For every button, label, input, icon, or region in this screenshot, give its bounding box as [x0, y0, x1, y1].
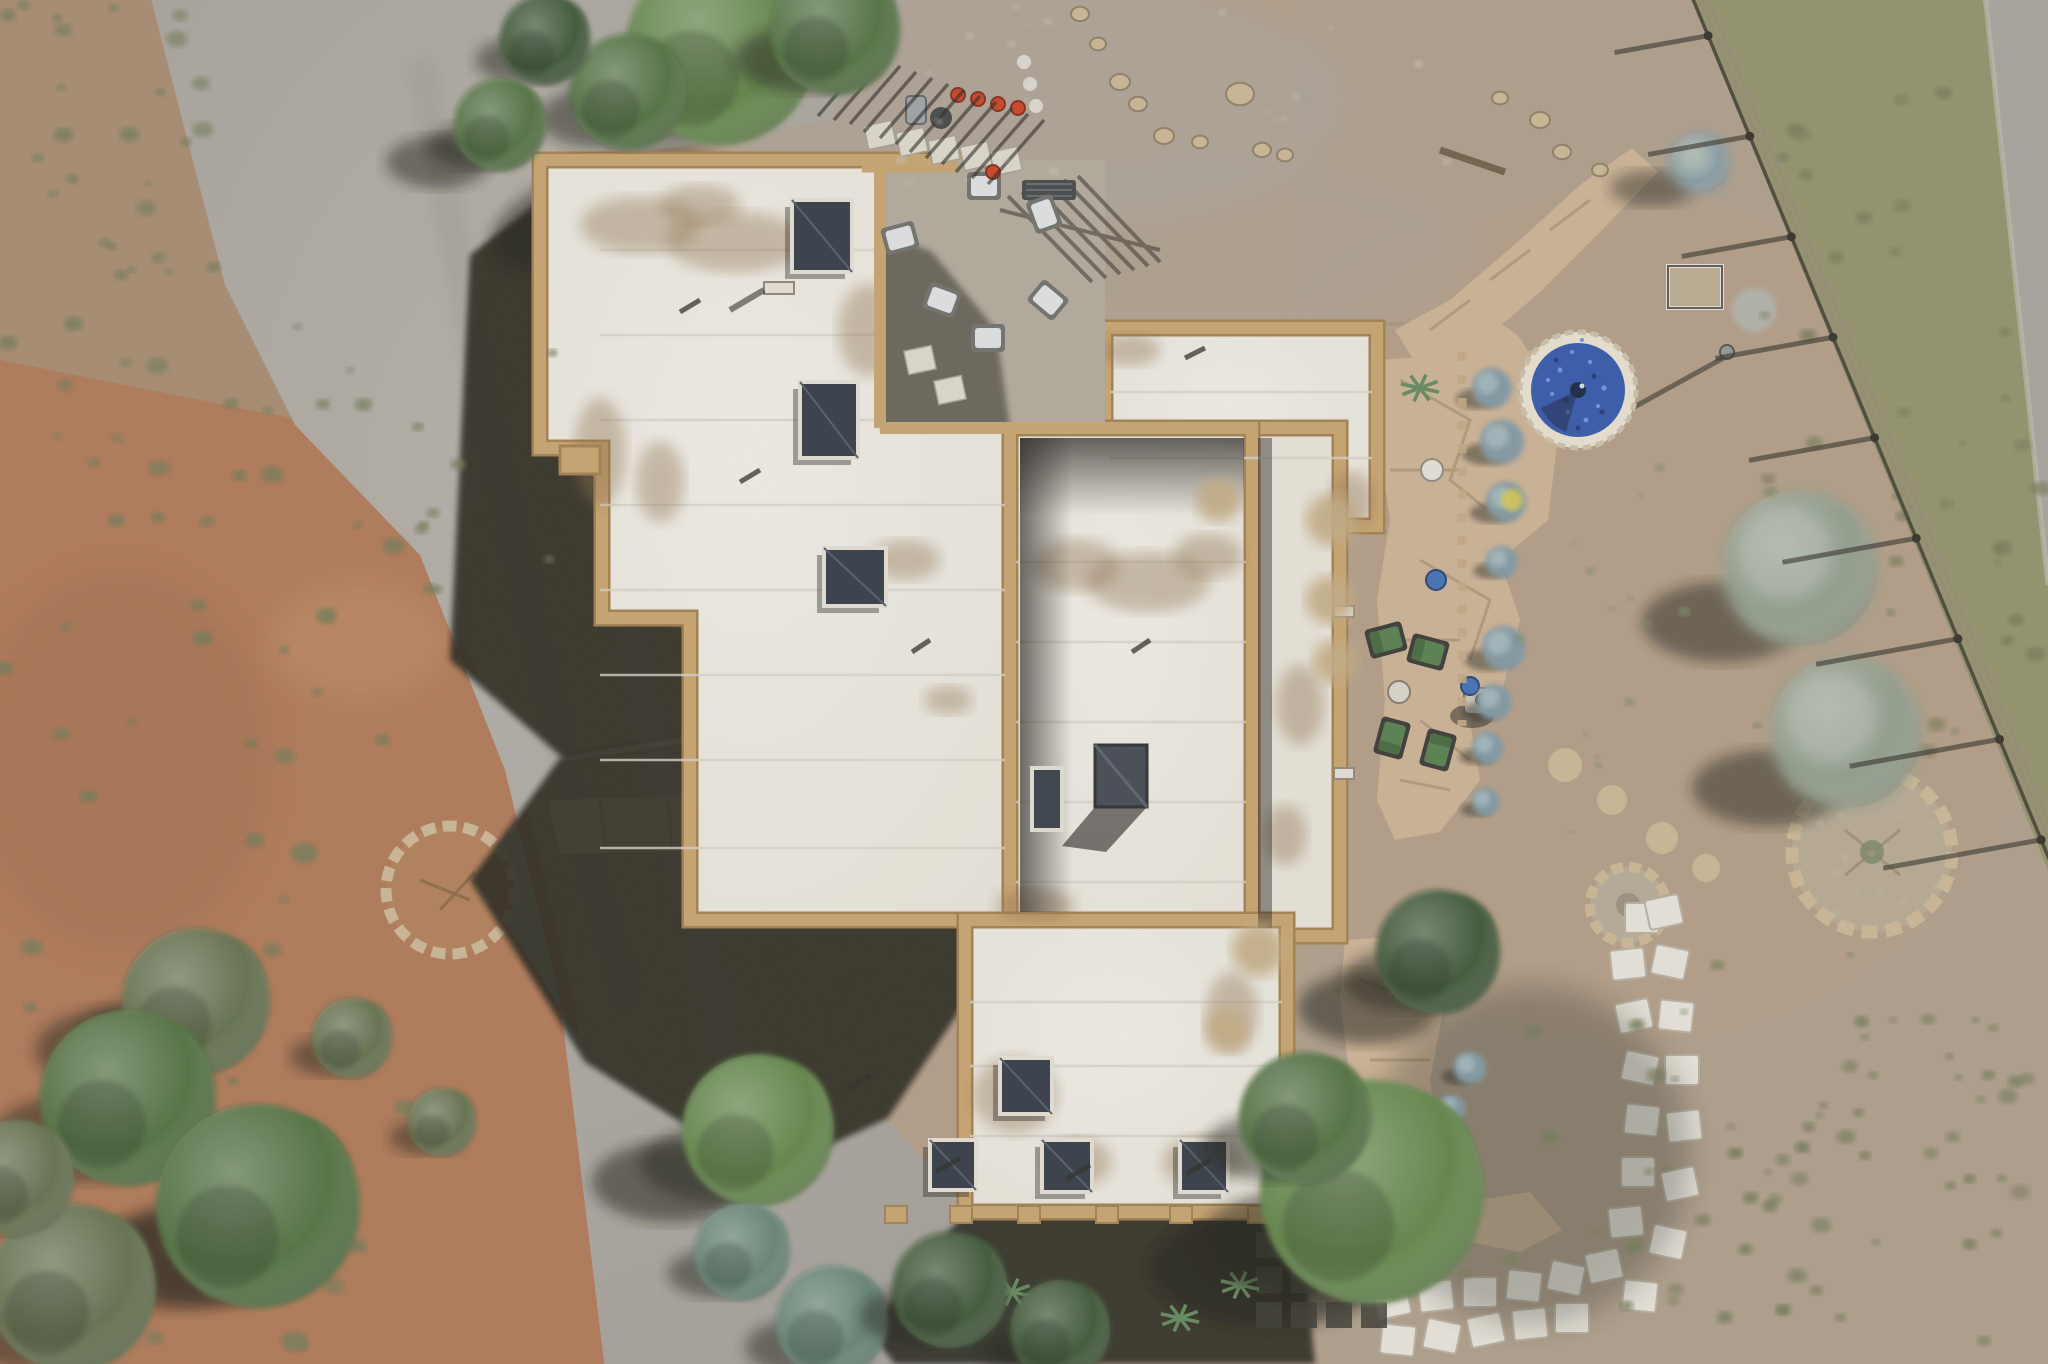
aerial-photo: [0, 0, 2048, 1364]
aerial-photo-canvas: [0, 0, 2048, 1364]
photo-grain: [0, 0, 2048, 1364]
